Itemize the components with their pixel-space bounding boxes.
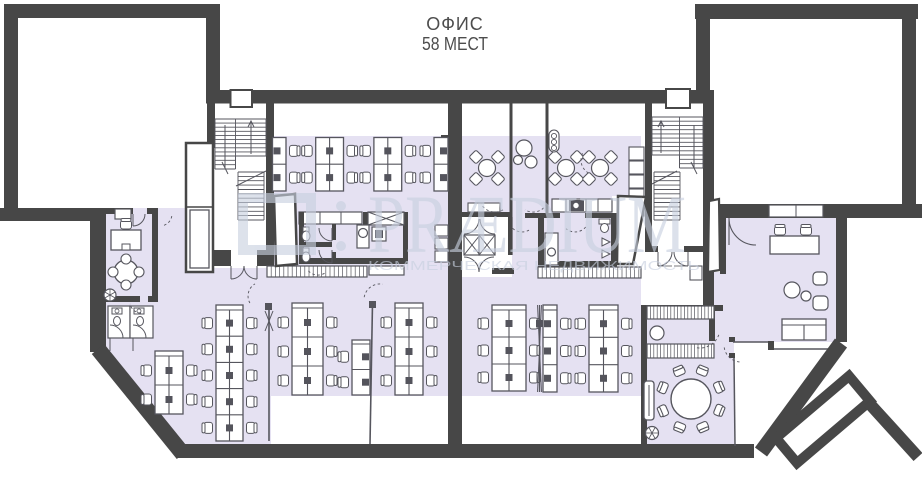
- svg-text:58 МЕСТ: 58 МЕСТ: [422, 34, 488, 54]
- svg-text:КОММЕРЧЕСКАЯ НЕДВИЖИМОСТЬ: КОММЕРЧЕСКАЯ НЕДВИЖИМОСТЬ: [368, 259, 700, 273]
- svg-text:PRÆDIUM: PRÆDIUM: [368, 178, 686, 270]
- svg-text:ОФИС: ОФИС: [426, 14, 484, 34]
